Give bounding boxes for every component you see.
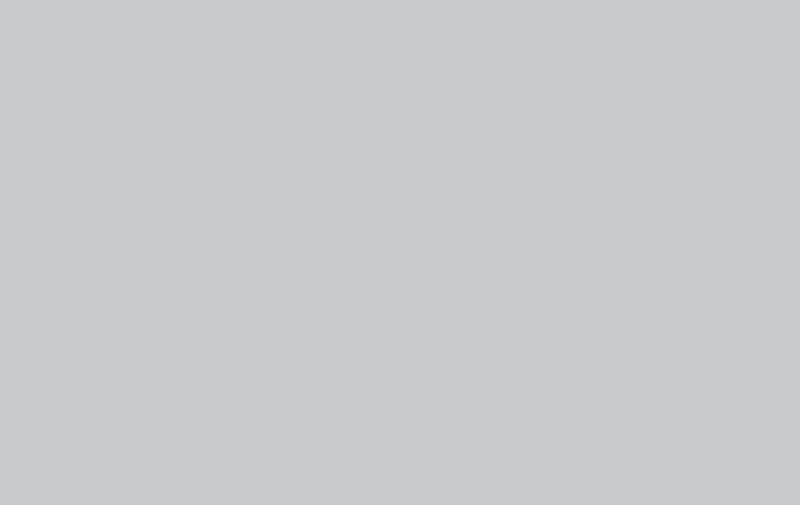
floorplan-scene (0, 0, 800, 505)
floorplan-rendering (0, 0, 800, 505)
